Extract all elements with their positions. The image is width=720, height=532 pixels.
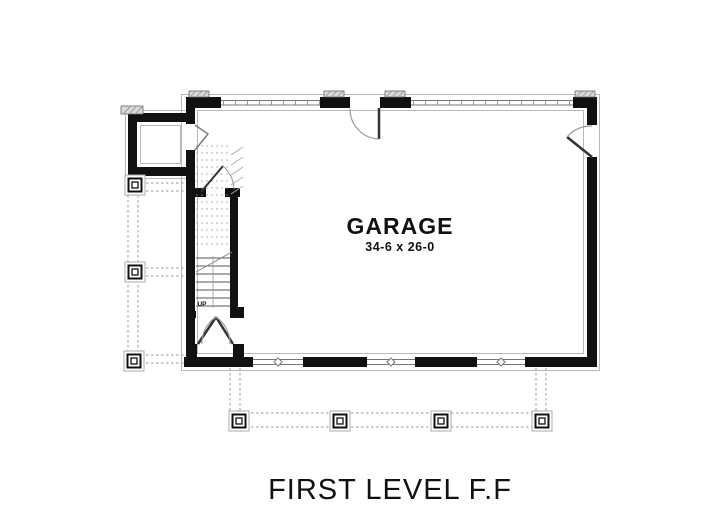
porch-post [125, 262, 145, 282]
right-wall-door [567, 126, 592, 157]
room-label-garage: GARAGE [300, 213, 500, 240]
stair-treads-upper-dashed [196, 146, 230, 244]
bottom-wall-windows [253, 358, 525, 366]
stair-upper-hatch [231, 147, 243, 194]
porch-post [431, 411, 451, 431]
porch-post [124, 351, 144, 371]
plan-title: FIRST LEVEL F.F [210, 474, 570, 507]
room-dimensions-label: 34-6 x 26-0 [300, 240, 500, 254]
stair-bottom-double-doors [198, 317, 233, 344]
stairs-up-label: UP [192, 301, 212, 308]
floor-plan-canvas: GARAGE 34-6 x 26-0 UP FIRST LEVEL F.F [0, 0, 720, 532]
top-wall-door [350, 108, 379, 139]
stair-break-line [196, 252, 232, 272]
floor-plan-drawing [0, 0, 720, 532]
porch-post [330, 411, 350, 431]
porch-post [229, 411, 249, 431]
porch-post [125, 175, 145, 195]
porch-post [532, 411, 552, 431]
